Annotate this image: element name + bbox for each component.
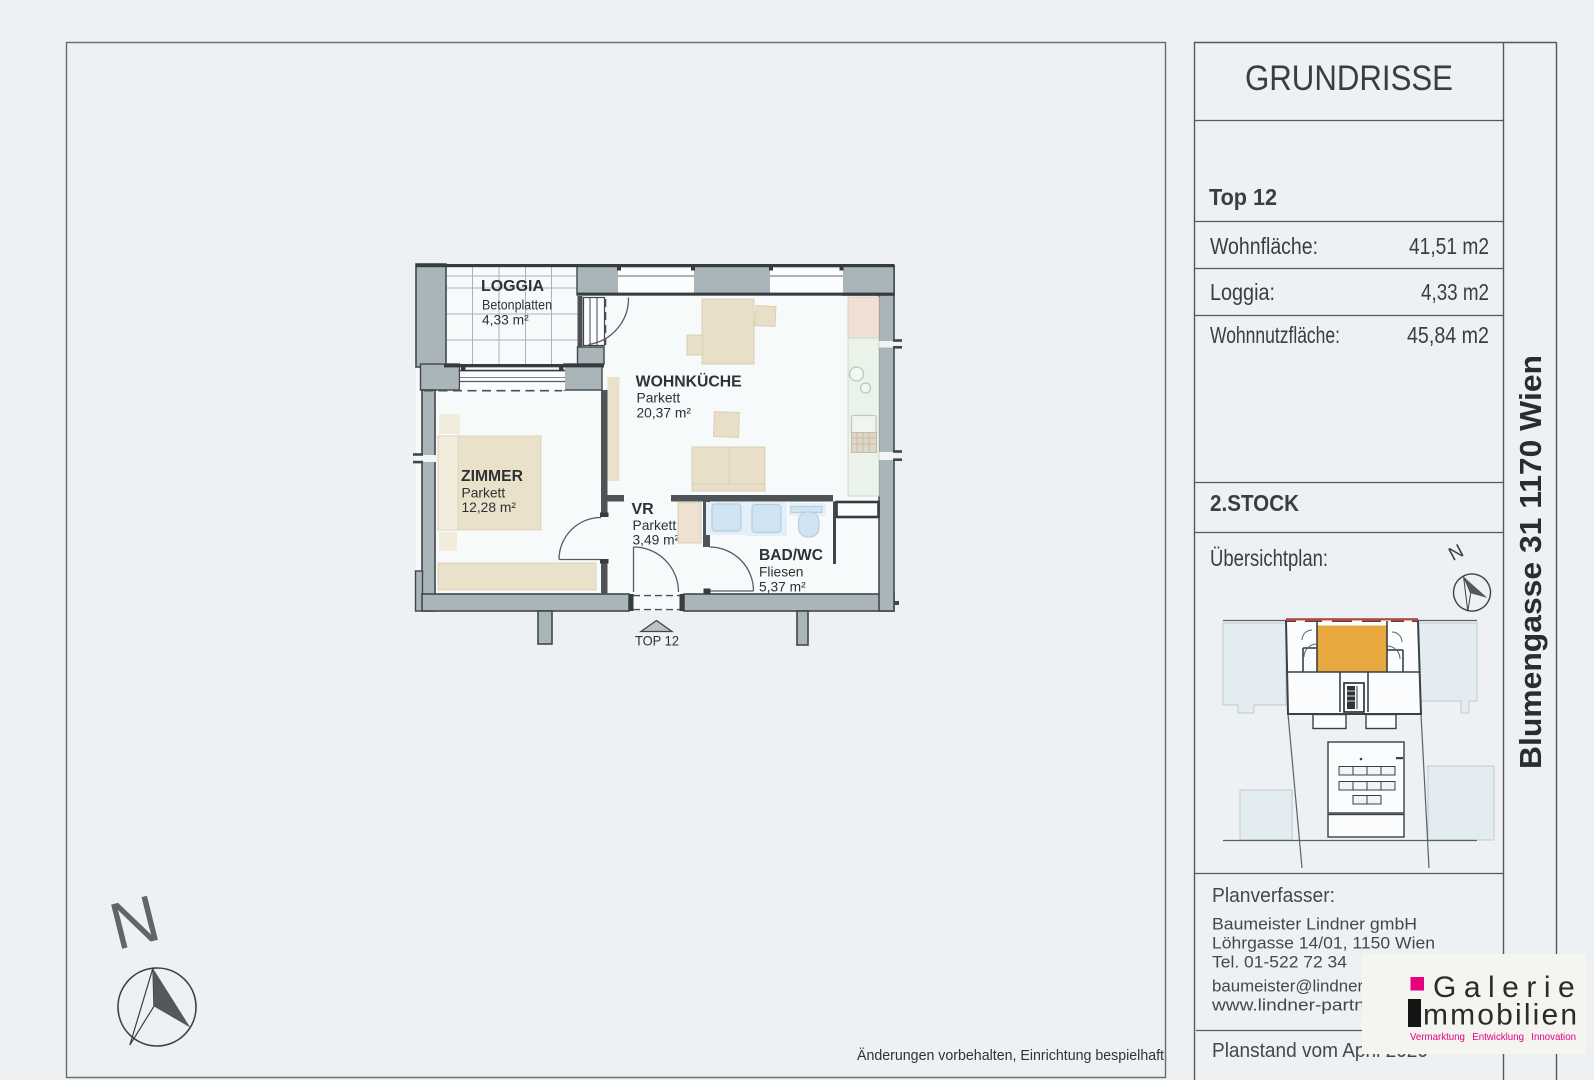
svg-text:Parkett: Parkett (462, 486, 506, 501)
svg-text:Loggia:: Loggia: (1210, 279, 1275, 305)
svg-text:mmobilien: mmobilien (1423, 999, 1577, 1032)
svg-text:Vermarktung Entwicklung Innova: Vermarktung Entwicklung Innovation (1410, 1031, 1576, 1043)
svg-text:12,28 m²: 12,28 m² (462, 500, 517, 515)
svg-text:GRUNDRISSE: GRUNDRISSE (1245, 59, 1453, 98)
svg-text:Parkett: Parkett (633, 518, 677, 533)
svg-text:4,33 m²: 4,33 m² (482, 313, 529, 328)
svg-text:2.STOCK: 2.STOCK (1210, 490, 1299, 516)
svg-text:WOHNKÜCHE: WOHNKÜCHE (636, 374, 742, 391)
svg-text:LOGGIA: LOGGIA (481, 278, 544, 295)
svg-text:Blumengasse 31 1170 Wien: Blumengasse 31 1170 Wien (1513, 355, 1548, 769)
svg-text:VR: VR (632, 501, 655, 518)
svg-text:Fliesen: Fliesen (759, 565, 803, 580)
svg-text:3,49 m²: 3,49 m² (633, 533, 680, 548)
svg-text:Top 12: Top 12 (1209, 184, 1277, 210)
svg-text:41,51 m2: 41,51 m2 (1409, 233, 1489, 259)
svg-text:Löhrgasse 14/01, 1150 Wien: Löhrgasse 14/01, 1150 Wien (1212, 934, 1435, 953)
svg-text:BAD/WC: BAD/WC (759, 547, 823, 564)
svg-text:Wohnfläche:: Wohnfläche: (1210, 233, 1318, 259)
svg-text:ZIMMER: ZIMMER (461, 468, 523, 485)
svg-text:5,37 m²: 5,37 m² (759, 580, 806, 595)
svg-text:Planverfasser:: Planverfasser: (1212, 885, 1335, 907)
svg-text:Übersichtplan:: Übersichtplan: (1210, 545, 1328, 571)
svg-text:Wohnnutzfläche:: Wohnnutzfläche: (1210, 322, 1340, 348)
svg-text:20,37 m²: 20,37 m² (637, 406, 692, 421)
svg-text:Tel. 01-522 72 34: Tel. 01-522 72 34 (1212, 953, 1347, 972)
svg-text:Betonplatten: Betonplatten (482, 298, 552, 313)
svg-text:Parkett: Parkett (637, 391, 681, 406)
svg-text:Baumeister Lindner gmbH: Baumeister Lindner gmbH (1212, 915, 1417, 934)
svg-text:TOP 12: TOP 12 (635, 634, 679, 649)
svg-text:4,33 m2: 4,33 m2 (1421, 279, 1489, 305)
svg-text:45,84 m2: 45,84 m2 (1407, 322, 1489, 348)
svg-text:Änderungen vorbehalten, Einric: Änderungen vorbehalten, Einrichtung besp… (857, 1047, 1164, 1064)
